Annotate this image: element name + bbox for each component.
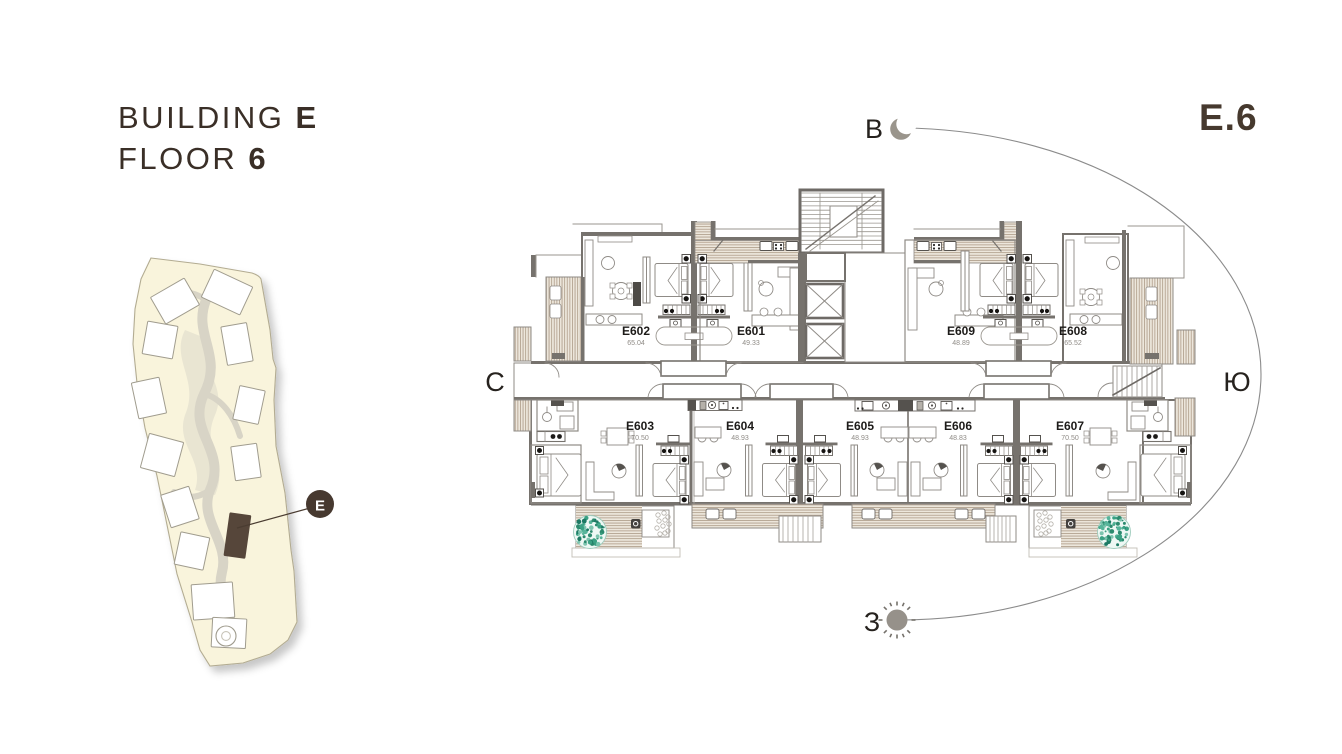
svg-text:48.83: 48.83 — [949, 435, 967, 442]
svg-text:E608: E608 — [1059, 324, 1087, 338]
svg-text:48.89: 48.89 — [952, 340, 970, 347]
svg-text:FLOOR 6: FLOOR 6 — [118, 141, 268, 176]
svg-text:48.93: 48.93 — [851, 435, 869, 442]
svg-text:65.04: 65.04 — [627, 340, 645, 347]
svg-text:Ю: Ю — [1223, 367, 1250, 397]
svg-text:З: З — [864, 607, 880, 637]
svg-text:E609: E609 — [947, 324, 975, 338]
svg-text:E605: E605 — [846, 419, 874, 433]
svg-text:70.50: 70.50 — [1061, 435, 1079, 442]
svg-text:E606: E606 — [944, 419, 972, 433]
svg-text:E.6: E.6 — [1199, 97, 1258, 138]
svg-text:48.93: 48.93 — [731, 435, 749, 442]
svg-text:В: В — [865, 114, 883, 144]
svg-text:E602: E602 — [622, 324, 650, 338]
svg-text:E: E — [315, 498, 325, 515]
svg-text:BUILDING E: BUILDING E — [118, 100, 319, 135]
svg-text:E603: E603 — [626, 419, 654, 433]
svg-text:E604: E604 — [726, 419, 754, 433]
svg-text:С: С — [485, 367, 505, 397]
svg-text:70.50: 70.50 — [631, 435, 649, 442]
svg-text:E601: E601 — [737, 324, 765, 338]
svg-text:49.33: 49.33 — [742, 340, 760, 347]
svg-text:65.52: 65.52 — [1064, 340, 1082, 347]
svg-text:E607: E607 — [1056, 419, 1084, 433]
